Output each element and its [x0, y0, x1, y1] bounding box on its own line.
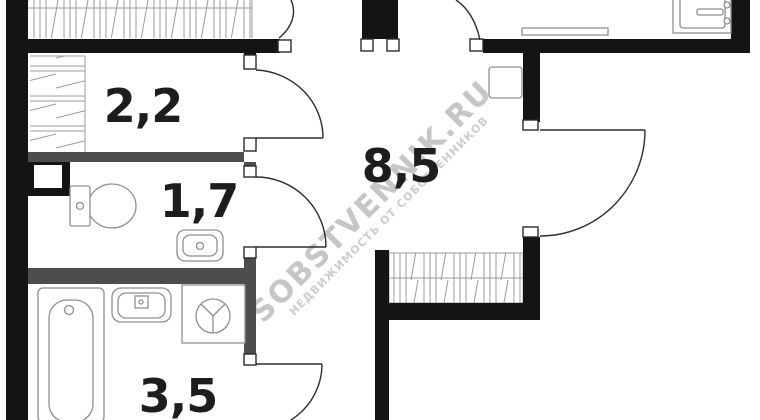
door-storage	[256, 70, 323, 138]
sink-symbol	[177, 230, 223, 261]
door-arc-symbol	[256, 0, 645, 420]
cabinet-symbol	[489, 67, 522, 98]
bath-sink-symbol	[112, 288, 171, 322]
door-bathroom	[256, 364, 322, 420]
wall-top-middle	[362, 0, 398, 39]
wardrobe-shelf-hatch	[30, 56, 85, 156]
wall-hall-right-upper	[523, 52, 540, 122]
stove-symbol	[673, 0, 731, 33]
wall-kitchen	[483, 39, 733, 53]
door-top-left-arc	[279, 0, 294, 38]
room-area-hallway: 8,5	[362, 143, 441, 189]
room-area-wc: 1,7	[160, 178, 239, 224]
vent-shaft-symbol	[26, 157, 70, 196]
closet-hatch-bottom	[389, 253, 523, 303]
floor-plan: SOBSTVENNIK.RU НЕДВИЖИМОСТЬ ОТ СОБСТВЕНН…	[0, 0, 760, 420]
door-top-right-arc	[456, 0, 480, 40]
partition-bath-hall	[244, 283, 256, 354]
kitchen-counter-symbol	[522, 28, 608, 35]
wall-closet-bottom	[28, 39, 280, 53]
washing-machine-symbol	[182, 285, 245, 343]
room-area-bathroom: 3,5	[139, 373, 218, 419]
wall-left-outer	[6, 0, 28, 420]
floor-plan-drawing	[0, 0, 760, 420]
wall-wardrobe-bottom	[375, 303, 540, 320]
wall-right-outer-top	[731, 0, 750, 53]
partition-storage-wc	[28, 152, 244, 162]
toilet-symbol	[70, 184, 136, 228]
door-hallway-room	[540, 130, 645, 236]
wall-bottom-middle	[375, 250, 389, 420]
bathtub-symbol	[38, 288, 104, 420]
partition-wc-bath	[28, 268, 256, 284]
room-area-storage: 2,2	[104, 83, 183, 129]
closet-hatch-top	[28, 0, 252, 38]
door-wc	[256, 177, 326, 247]
